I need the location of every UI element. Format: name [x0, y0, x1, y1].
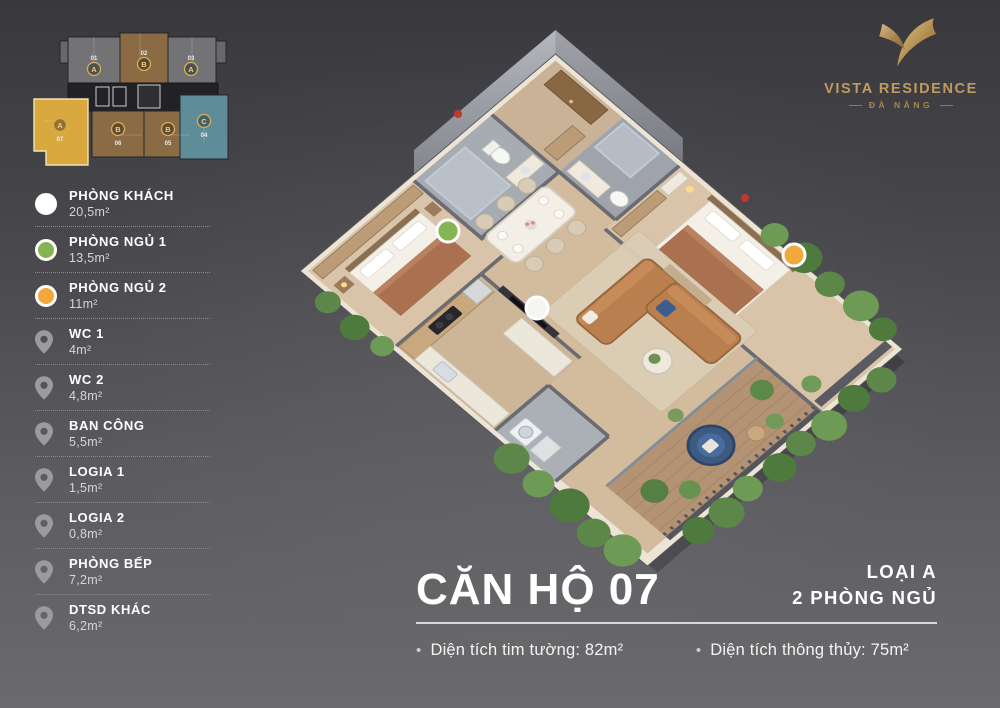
rose-accent-1	[454, 110, 462, 118]
room-name: LOGIA 1	[69, 464, 125, 479]
room-area: 7,2m²	[69, 573, 152, 587]
room-area: 4m²	[69, 343, 104, 357]
room-name: LOGIA 2	[69, 510, 125, 525]
apartment-info: CĂN HỘ 07 LOẠI A 2 PHÒNG NGỦ Diện tích t…	[416, 559, 937, 660]
map-pin-icon	[35, 606, 69, 630]
ornament-line	[940, 105, 953, 106]
svg-text:02: 02	[141, 51, 148, 57]
legend-item-wc1: WC 14m²	[35, 318, 210, 364]
legend-item-dtsd-khac: DTSD KHÁC6,2m²	[35, 594, 210, 640]
bedroom1-color-icon	[35, 239, 69, 261]
room-area: 20,5m²	[69, 205, 174, 219]
room-name: PHÒNG BẾP	[69, 556, 152, 571]
room-area: 5,5m²	[69, 435, 145, 449]
legend-item-ban-cong: BAN CÔNG5,5m²	[35, 410, 210, 456]
plan-floor	[300, 40, 920, 572]
stat-net-area: Diện tích thông thủy: 75m²	[696, 641, 909, 660]
apartment-title: CĂN HỘ 07	[416, 567, 660, 613]
legend-item-logia-2: LOGIA 20,8m²	[35, 502, 210, 548]
map-pin-icon	[35, 514, 69, 538]
svg-text:01: 01	[91, 56, 98, 62]
room-name: WC 2	[69, 372, 104, 387]
marker-living-room	[526, 297, 548, 319]
svg-text:03: 03	[188, 56, 195, 62]
room-name: BAN CÔNG	[69, 418, 145, 433]
svg-text:C: C	[201, 117, 207, 126]
map-pin-icon	[35, 468, 69, 492]
bedroom2-color-icon	[35, 285, 69, 307]
room-area: 1,5m²	[69, 481, 125, 495]
svg-text:06: 06	[115, 141, 122, 147]
key-plan: 01 A 02 B 03 A C 04 B 05 B 06 A 07	[30, 25, 240, 170]
stair-core	[138, 85, 160, 108]
living-room-color-icon	[35, 193, 69, 215]
svg-text:07: 07	[57, 137, 64, 143]
stat-gross-area: Diện tích tim tường: 82m²	[416, 641, 623, 660]
room-name: PHÒNG NGỦ 1	[69, 234, 167, 249]
legend-item-phong-khach: PHÒNG KHÁCH20,5m²	[35, 181, 210, 226]
rose-accent-2	[741, 194, 749, 202]
room-name: WC 1	[69, 326, 104, 341]
svg-text:A: A	[57, 121, 63, 130]
legend-item-phong-ngu-1: PHÒNG NGỦ 113,5m²	[35, 226, 210, 272]
map-pin-icon	[35, 376, 69, 400]
room-area: 6,2m²	[69, 619, 151, 633]
room-legend: PHÒNG KHÁCH20,5m² PHÒNG NGỦ 113,5m² PHÒN…	[35, 181, 210, 640]
room-area: 0,8m²	[69, 527, 125, 541]
svg-text:A: A	[91, 65, 97, 74]
keyplan-wing-right	[216, 41, 226, 63]
apartment-type-line2: 2 PHÒNG NGỦ	[792, 585, 937, 611]
room-name: PHÒNG NGỦ 2	[69, 280, 167, 295]
apartment-type: LOẠI A 2 PHÒNG NGỦ	[792, 559, 937, 613]
floor-plan-3d	[300, 26, 920, 572]
svg-text:A: A	[188, 65, 194, 74]
svg-text:05: 05	[165, 141, 172, 147]
svg-text:B: B	[115, 125, 121, 134]
room-area: 4,8m²	[69, 389, 104, 403]
legend-item-logia-1: LOGIA 11,5m²	[35, 456, 210, 502]
room-name: DTSD KHÁC	[69, 602, 151, 617]
map-pin-icon	[35, 560, 69, 584]
legend-item-wc2: WC 24,8m²	[35, 364, 210, 410]
room-name: PHÒNG KHÁCH	[69, 188, 174, 203]
marker-bedroom-1	[437, 220, 459, 242]
area-stats: Diện tích tim tường: 82m² Diện tích thôn…	[416, 641, 937, 660]
svg-text:B: B	[165, 125, 171, 134]
brochure-page: 01 A 02 B 03 A C 04 B 05 B 06 A 07	[0, 0, 1000, 708]
info-divider	[416, 622, 937, 624]
marker-bedroom-2	[783, 244, 805, 266]
legend-item-phong-ngu-2: PHÒNG NGỦ 211m²	[35, 272, 210, 318]
svg-text:04: 04	[201, 133, 208, 139]
legend-item-phong-bep: PHÒNG BẾP7,2m²	[35, 548, 210, 594]
svg-text:B: B	[141, 60, 147, 69]
room-area: 11m²	[69, 297, 167, 311]
apartment-type-line1: LOẠI A	[792, 559, 937, 585]
map-pin-icon	[35, 422, 69, 446]
room-area: 13,5m²	[69, 251, 167, 265]
map-pin-icon	[35, 330, 69, 354]
